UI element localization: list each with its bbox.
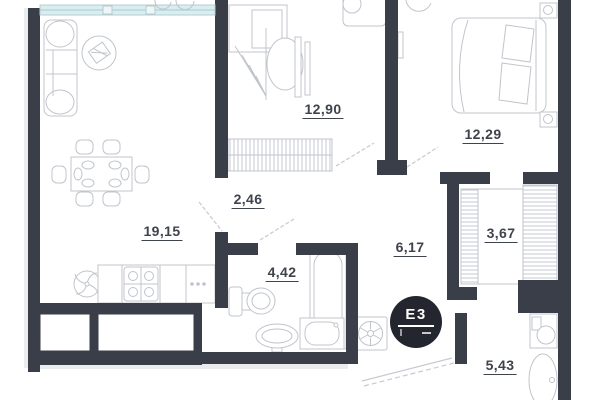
- dining-table-icon: [71, 157, 132, 191]
- room-label-bathroom: 4,42: [266, 265, 299, 282]
- room-label-wardrobe: 3,67: [485, 226, 518, 243]
- room-label-bathroom-2: 5,43: [484, 358, 517, 375]
- radiator-icon: [398, 32, 403, 58]
- room-label-corridor: 6,17: [394, 240, 427, 257]
- plant-icon: [74, 271, 100, 297]
- unit-badge-divider: [398, 325, 434, 327]
- desk-icon: [343, 0, 386, 26]
- cabinet-icon: [300, 318, 344, 349]
- stove-icon: [124, 267, 158, 301]
- wall-niche: [40, 314, 194, 351]
- badge-tick: [422, 332, 431, 334]
- bed-2-icon: [452, 18, 546, 113]
- coffee-table-icon: [82, 36, 116, 70]
- sink-icon: [256, 324, 298, 352]
- unit-badge-sub-marks: [399, 329, 433, 337]
- floor-plan: 19,15 12,90 12,29 2,46 4,42 6,17 3,67 5,…: [0, 0, 600, 400]
- toilet-icon: [229, 287, 275, 316]
- room-label-bedroom-2: 12,29: [462, 127, 503, 144]
- badge-tick: [400, 329, 402, 336]
- plan-drawing: [0, 0, 600, 400]
- room-label-living-room: 19,15: [141, 224, 182, 241]
- tub-icon: [529, 354, 557, 400]
- room-label-bedroom-1: 12,90: [302, 102, 343, 119]
- unit-badge-label: E3: [405, 307, 426, 322]
- window-band: [40, 5, 215, 15]
- unit-badge: E3: [390, 296, 442, 348]
- wardrobe-hatch: [228, 139, 332, 171]
- room-label-hallway: 2,46: [232, 192, 265, 209]
- stool-icon: [406, 0, 431, 11]
- sofa-icon: [44, 20, 77, 116]
- washing-machine-icon: [354, 317, 387, 350]
- vanity-sink-icon: [530, 314, 557, 348]
